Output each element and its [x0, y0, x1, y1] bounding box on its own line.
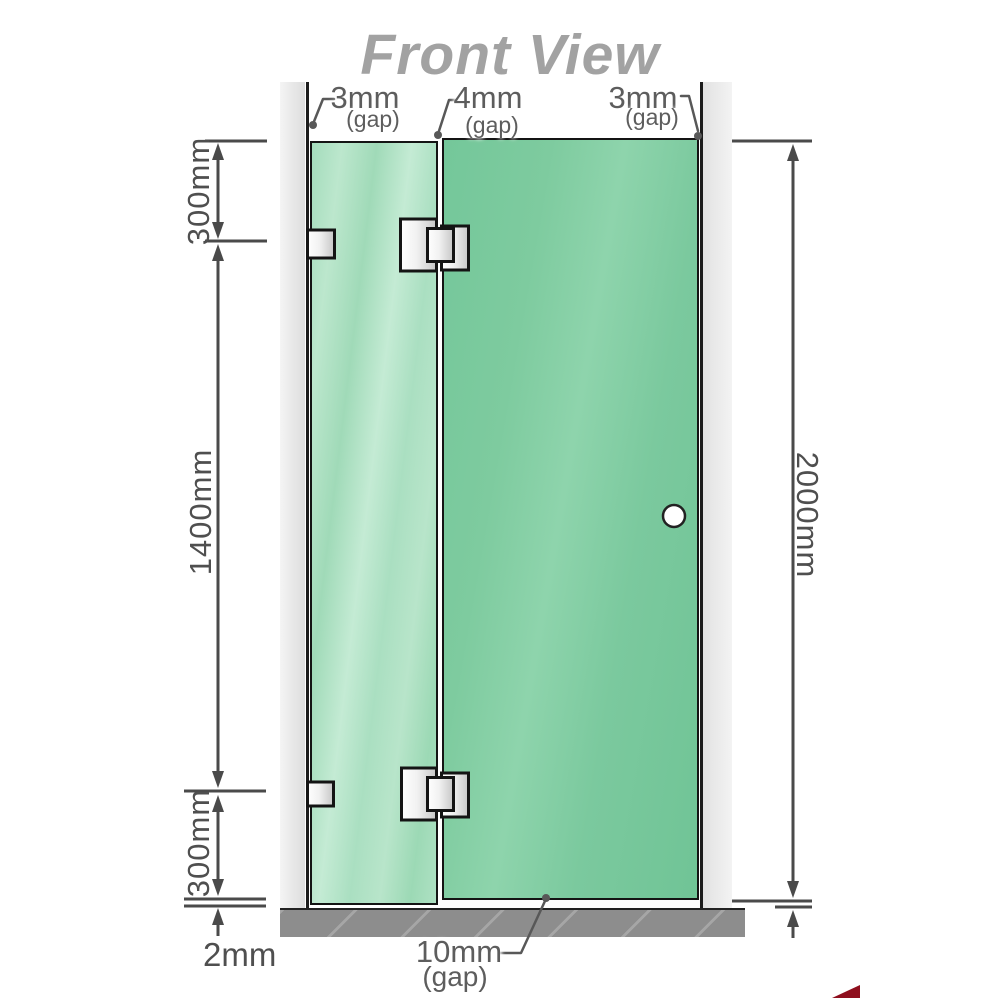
gap-leader-lines — [313, 96, 698, 953]
gap-bottom-door-qualifier: (gap) — [422, 961, 487, 993]
dimension-overlay — [0, 0, 1000, 1000]
hinge-bottom — [402, 768, 469, 820]
wall-bracket-bottom — [308, 782, 334, 806]
gap-top-middle-value: 4mm — [454, 80, 523, 116]
dim-right-total-label: 2000mm — [789, 452, 825, 579]
gap-top-left-qualifier: (gap) — [346, 106, 400, 133]
logo-sliver — [832, 985, 860, 998]
door-handle-knob — [663, 505, 685, 527]
gap-top-right-qualifier: (gap) — [625, 104, 679, 131]
front-view-diagram: Front View — [0, 0, 1000, 1000]
gap-leader-dots — [309, 121, 702, 902]
hinge-top — [401, 219, 469, 271]
dim-left-bottom-label: 300mm — [181, 789, 217, 897]
dim-floor-gap-label: 2mm — [203, 936, 276, 974]
gap-top-middle-qualifier: (gap) — [465, 112, 519, 139]
dim-left-top-label: 300mm — [181, 137, 217, 245]
wall-bracket-top — [308, 230, 335, 258]
dim-left-middle-label: 1400mm — [183, 449, 219, 576]
